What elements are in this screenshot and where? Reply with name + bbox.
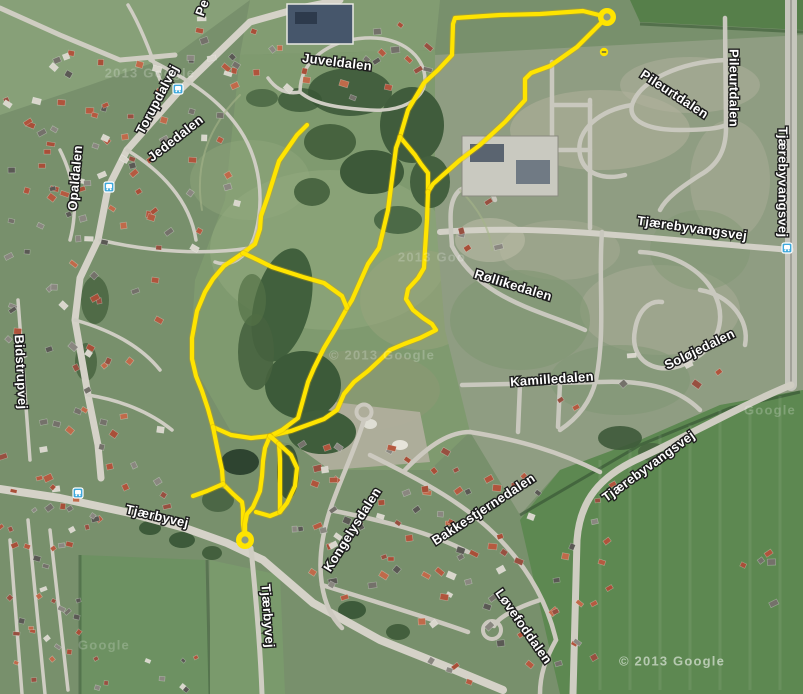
house bbox=[31, 678, 37, 683]
google-watermark: Google bbox=[78, 637, 130, 652]
house bbox=[100, 419, 108, 426]
street-label: Tjærebyvangsvej bbox=[776, 127, 791, 238]
street-label: Pileurtdalen bbox=[727, 49, 742, 127]
house bbox=[391, 46, 400, 53]
house bbox=[73, 614, 80, 620]
google-watermark: © 2013 Google bbox=[619, 653, 725, 668]
house bbox=[302, 77, 310, 84]
house bbox=[201, 135, 207, 141]
house bbox=[373, 28, 381, 35]
bus-stop-icon[interactable] bbox=[782, 243, 792, 253]
google-watermark: 2013 Google bbox=[105, 65, 196, 80]
house bbox=[319, 527, 327, 534]
house bbox=[28, 626, 33, 629]
house bbox=[253, 69, 260, 76]
house bbox=[128, 114, 134, 118]
house bbox=[18, 618, 25, 625]
house bbox=[292, 526, 297, 532]
map-canvas[interactable]: JuveldalenTorupdalvejJededalenOpaldalenP… bbox=[0, 0, 803, 694]
route-endpoint-marker[interactable] bbox=[598, 8, 616, 26]
house bbox=[121, 134, 129, 141]
house bbox=[458, 227, 465, 235]
house bbox=[277, 45, 282, 50]
house bbox=[67, 649, 72, 654]
house bbox=[595, 498, 601, 503]
bus-stop-icon[interactable] bbox=[73, 488, 83, 498]
google-watermark: 2013 Goo bbox=[398, 249, 466, 264]
house bbox=[187, 55, 194, 60]
house bbox=[13, 632, 20, 636]
house bbox=[561, 553, 569, 560]
house bbox=[98, 444, 104, 451]
house bbox=[496, 640, 504, 647]
house bbox=[330, 477, 338, 482]
house bbox=[321, 466, 329, 473]
house bbox=[84, 181, 91, 186]
house bbox=[159, 676, 165, 681]
house bbox=[384, 84, 392, 91]
house bbox=[553, 578, 560, 583]
house bbox=[106, 463, 114, 470]
house bbox=[98, 59, 104, 65]
house bbox=[46, 142, 55, 147]
house bbox=[120, 222, 127, 229]
house bbox=[151, 277, 159, 283]
house bbox=[51, 284, 58, 290]
house bbox=[120, 413, 128, 419]
house bbox=[405, 535, 413, 542]
house bbox=[84, 236, 93, 241]
house bbox=[39, 164, 46, 169]
house bbox=[217, 112, 224, 118]
house bbox=[488, 543, 497, 550]
house bbox=[437, 511, 443, 517]
house bbox=[8, 167, 15, 173]
house bbox=[156, 245, 162, 250]
bus-stop-icon[interactable] bbox=[173, 84, 183, 94]
house bbox=[298, 526, 304, 531]
house bbox=[233, 200, 240, 207]
house bbox=[39, 446, 47, 453]
route-endpoint-marker[interactable] bbox=[236, 531, 254, 549]
house bbox=[60, 503, 66, 509]
google-watermark: Google bbox=[744, 402, 796, 417]
bus-stop-icon[interactable] bbox=[104, 182, 114, 192]
house bbox=[440, 593, 449, 600]
house bbox=[368, 582, 377, 589]
house bbox=[388, 557, 394, 561]
house bbox=[76, 598, 82, 603]
house bbox=[418, 618, 426, 625]
house bbox=[85, 524, 90, 530]
house bbox=[24, 249, 30, 254]
house bbox=[44, 150, 51, 155]
house bbox=[157, 426, 165, 433]
house bbox=[101, 239, 109, 245]
satellite-map: JuveldalenTorupdalvejJededalenOpaldalenP… bbox=[0, 0, 803, 694]
house bbox=[57, 99, 65, 105]
house bbox=[301, 68, 307, 75]
google-watermark: © 2013 Google bbox=[329, 347, 435, 362]
house bbox=[58, 543, 65, 548]
house bbox=[627, 353, 636, 358]
route-dot-marker[interactable] bbox=[600, 48, 608, 56]
house bbox=[591, 518, 598, 524]
house bbox=[189, 157, 197, 163]
house bbox=[104, 681, 109, 686]
house bbox=[767, 559, 776, 565]
house bbox=[75, 235, 81, 242]
house bbox=[421, 486, 429, 493]
